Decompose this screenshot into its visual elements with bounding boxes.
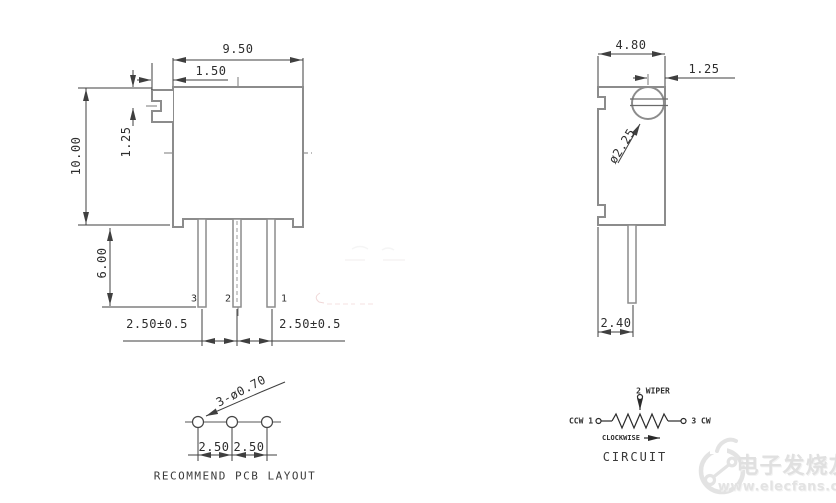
circuit-left-terminal-label: CCW 1 [569, 417, 593, 426]
front-body-outline [173, 87, 303, 227]
front-view [78, 58, 345, 346]
dim-body-depth-label: 4.80 [616, 38, 647, 52]
dim-pitch-left-label: 2.50 [199, 440, 230, 454]
resistor-element [612, 414, 668, 428]
dim-screw-offset-label: 1.25 [689, 62, 720, 76]
dim-slot-center-label: 1.25 [119, 127, 133, 158]
pcb-layout-title: RECOMMEND PCB LAYOUT [154, 470, 316, 483]
dim-pin-pitch-left-label: 2.50±0.5 [126, 317, 188, 331]
dim-pin-offset-label: 2.40 [601, 316, 632, 330]
dim-body-height-label: 10.00 [69, 137, 83, 176]
faint-remnant-marks [316, 247, 405, 305]
dim-pin-pitch-right-label: 2.50±0.5 [279, 317, 341, 331]
watermark-brand: 电子发烧友 [736, 448, 836, 480]
circuit-wiper-label: 2 WIPER [636, 387, 670, 396]
pin-number-3: 3 [191, 294, 197, 305]
circuit-view [596, 395, 686, 439]
circuit-title: CIRCUIT [603, 450, 668, 464]
trimmer-potentiometer-drawing: 9.50 1.50 10.00 1.25 6.00 2.50±0.5 2.50±… [0, 0, 836, 503]
pin-number-1: 1 [281, 294, 287, 305]
circuit-right-terminal-label: 3 CW [691, 417, 710, 426]
side-view [598, 54, 735, 337]
adjust-screw [632, 87, 664, 119]
circuit-direction-label: CLOCKWISE [602, 434, 640, 442]
side-pin [628, 225, 636, 303]
dim-slot-inset-label: 1.50 [196, 64, 227, 78]
pin-number-2: 2 [225, 294, 231, 305]
watermark-site: www.elecfans.com [718, 480, 836, 495]
dim-pitch-right-label: 2.50 [234, 440, 265, 454]
dim-pin-length-label: 6.00 [95, 248, 109, 279]
dim-body-width-label: 9.50 [223, 42, 254, 56]
